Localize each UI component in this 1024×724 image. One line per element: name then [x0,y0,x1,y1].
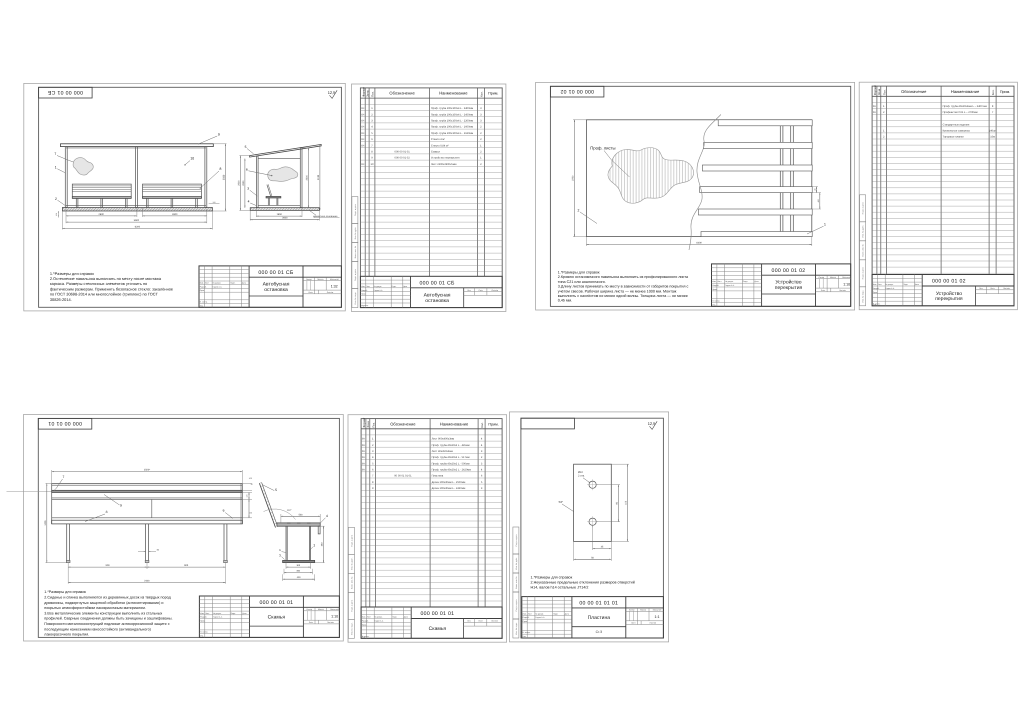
svg-text:Литер: Литер [629,609,635,612]
svg-text:Листов: Листов [1003,287,1010,290]
svg-text:Листов: Листов [327,291,334,294]
svg-text:8: 8 [106,510,108,514]
svg-text:№ докум.: № докум. [725,280,734,283]
svg-text:Масса: Масса [317,278,324,281]
svg-text:Инв. № подл.: Инв. № подл. [862,290,865,303]
svg-text:2500*: 2500* [144,469,150,472]
svg-text:3.Длину листов принимать по ме: 3.Длину листов принимать по месту в зави… [558,285,689,289]
svg-text:000 00 01 02: 000 00 01 02 [932,279,966,285]
svg-text:Устройство перекрытия: Устройство перекрытия [431,157,460,160]
svg-text:Изм.: Изм. [362,616,366,619]
svg-text:Дата: Дата [915,283,919,286]
svg-text:остановка: остановка [264,287,288,293]
svg-text:Литер: Литер [306,608,312,611]
svg-text:№ докум.: № докум. [535,612,544,615]
svg-text:БЧ: БЧ [362,462,365,465]
svg-text:Проф. труба 100х100х4 L - 2450: Проф. труба 100х100х4 L - 2450мм [431,113,473,116]
svg-text:БЧ: БЧ [361,138,364,141]
svg-text:Разраб.: Разраб. [362,620,369,623]
svg-text:Проф. труба 100х100х4 L - 2400: Проф. труба 100х100х4 L - 2400мм [431,107,473,110]
svg-text:Кол.: Кол. [479,91,483,97]
svg-text:1600: 1600 [277,213,283,216]
svg-text:6: 6 [223,509,225,513]
svg-text:БЧ: БЧ [362,438,365,441]
svg-text:6: 6 [246,167,248,171]
svg-text:Лит.: Лит. [979,287,983,290]
svg-text:120: 120 [246,495,249,498]
svg-text:Прим.: Прим. [488,92,498,96]
svg-text:Лист 900х400х3мм: Лист 900х400х3мм [432,438,455,441]
svg-text:Лист: Лист [366,285,370,288]
svg-text:Торцевые планки: Торцевые планки [943,136,964,139]
svg-text:Проф. труба 40х20х2мм L – 6400: Проф. труба 40х20х2мм L – 6400 мм [943,105,987,108]
svg-text:Литер: Литер [819,276,825,279]
svg-text:1: 1 [55,165,57,169]
svg-text:Подп.: Подп. [392,616,397,619]
svg-text:Дата: Дата [403,285,407,288]
svg-text:Разраб.: Разраб. [523,616,530,619]
svg-text:Поверхности металлоконструкций: Поверхности металлоконструкций подлежат … [44,622,169,626]
svg-text:Изм.: Изм. [200,282,205,285]
svg-text:40: 40 [814,189,817,191]
svg-text:Зона: Зона [365,90,369,97]
svg-text:Утв.: Утв. [523,635,527,638]
svg-text:Лист: Лист [990,287,994,290]
svg-text:Н14, валов h14 остальные ЈТ14/: Н14, валов h14 остальные ЈТ14/2 [531,586,589,590]
svg-text:Поз.: Поз. [371,91,375,97]
svg-text:древесины, подвергнутых защитн: древесины, подвергнутых защитной обработ… [44,601,163,605]
svg-text:10: 10 [190,157,194,161]
svg-text:Подп. и дата: Подп. и дата [354,203,357,216]
svg-text:5600: 5600 [134,219,140,222]
svg-text:Гаджи А.А.: Гаджи А.А. [213,286,223,289]
svg-text:Лист: Лист [205,282,209,285]
svg-text:5: 5 [275,488,277,492]
svg-text:Подп.: Подп. [392,285,397,288]
svg-text:2800: 2800 [172,213,178,216]
svg-text:Лит.: Лит. [467,620,471,623]
svg-text:Гаджи А.А.: Гаджи А.А. [886,287,896,290]
svg-text:лакокрасочного покрытия.: лакокрасочного покрытия. [44,633,89,637]
svg-text:учётом свесов. Рабочая ширина: учётом свесов. Рабочая ширина листа — не… [558,289,677,293]
svg-text:Пластина: Пластина [588,615,611,621]
svg-text:Лист 2200х2900х5мм: Лист 2200х2900х5мм [431,163,457,166]
svg-text:Подп. и дата: Подп. и дата [515,599,518,612]
svg-text:Подп. и дата: Подп. и дата [515,534,518,547]
svg-text:Утв.: Утв. [873,303,877,306]
svg-text:Инв. № дубл.: Инв. № дубл. [515,557,518,570]
svg-text:12,5: 12,5 [648,421,656,426]
svg-text:Подп. и дата: Подп. и дата [862,267,865,280]
svg-text:Скамья: Скамья [429,626,447,632]
svg-text:Ст.3: Ст.3 [596,630,603,634]
svg-text:Подп.: Подп. [903,283,908,286]
svg-text:Лит.: Лит. [467,289,471,292]
svg-text:Стекло 0,84 м²: Стекло 0,84 м² [431,144,449,147]
svg-text:Подп. и дата: Подп. и дата [350,599,353,612]
svg-text:000 00 01 01: 000 00 01 01 [48,420,82,426]
svg-text:600: 600 [817,199,820,202]
svg-text:1.*Размеры для справок: 1.*Размеры для справок [558,271,600,275]
svg-text:типа С21 или аналогичного.: типа С21 или аналогичного. [558,280,606,284]
svg-text:БЧ: БЧ [362,444,365,447]
svg-text:Инв. № дубл.: Инв. № дубл. [350,557,353,570]
svg-text:Пров.: Пров. [361,293,366,296]
svg-text:150: 150 [55,213,58,216]
svg-text:Разраб.: Разраб. [200,286,207,289]
svg-text:000 00 01 02: 000 00 01 02 [772,268,806,274]
svg-text:№ докум.: № докум. [375,616,383,619]
svg-text:000 00 01 01: 000 00 01 01 [420,611,454,617]
svg-text:Доска 100х30мм L - 2420мм: Доска 100х30мм L - 2420мм [432,487,466,490]
svg-text:Кровельные саморезы: Кровельные саморезы [943,130,970,133]
svg-text:Проф. листы: Проф. листы [590,145,615,150]
svg-text:000 00 01 01: 000 00 01 01 [395,151,411,154]
svg-text:1: 1 [824,222,826,226]
svg-text:Разраб.: Разраб. [873,287,880,290]
svg-text:Изм.: Изм. [523,612,528,615]
svg-text:Пров.: Пров. [873,291,878,294]
svg-text:Подп.: Подп. [231,612,236,615]
svg-text:№ докум.: № докум. [886,283,894,286]
svg-text:9: 9 [120,504,122,508]
svg-text:Лист: Лист [631,622,635,625]
svg-text:№ докум.: № докум. [374,285,382,288]
svg-text:Обозначение: Обозначение [390,421,416,426]
svg-text:000 00 01 02: 000 00 01 02 [560,88,594,94]
svg-text:Наименование: Наименование [439,91,468,96]
svg-text:000 00 01 02: 000 00 01 02 [395,157,411,160]
svg-text:Листов: Листов [650,622,657,625]
svg-text:Кол.: Кол. [480,422,484,428]
svg-text:Лист: Лист [479,289,483,292]
svg-text:0,45 мм.: 0,45 мм. [558,299,572,303]
svg-text:Лист: Лист [717,280,721,283]
svg-text:7: 7 [54,152,56,156]
svg-text:2300: 2300 [242,180,245,186]
svg-text:Подп. и дата: Подп. и дата [862,202,865,215]
svg-text:Гаджи А.А.: Гаджи А.А. [374,289,384,292]
svg-text:2.Сиденье и спинка выполняются: 2.Сиденье и спинка выполняются из деревя… [44,596,171,600]
svg-text:Листов: Листов [327,621,334,624]
svg-text:00 00 01 01 01: 00 00 01 01 01 [579,601,618,607]
svg-text:БЧ: БЧ [361,107,364,110]
svg-text:10: 10 [250,483,252,486]
svg-text:Н. контр.: Н. контр. [200,631,208,634]
svg-text:Наименование: Наименование [440,421,469,426]
svg-text:Лист: Лист [205,612,209,615]
svg-text:БЧ: БЧ [873,105,876,108]
svg-text:Лист: Лист [309,621,313,624]
svg-text:Профнастил С21 L – 2700мм: Профнастил С21 L – 2700мм [943,111,978,114]
svg-text:Наименование: Наименование [951,89,980,94]
svg-text:БЧ: БЧ [873,111,876,114]
svg-text:№ докум.: № докум. [213,282,222,285]
svg-text:Поз.: Поз. [882,89,886,95]
svg-text:4: 4 [326,514,328,518]
svg-text:Гаджи А.А.: Гаджи А.А. [535,616,545,619]
svg-text:Стандартные изделия: Стандартные изделия [943,123,970,126]
svg-text:БЧ: БЧ [361,113,364,116]
svg-text:Утв.: Утв. [362,635,366,638]
svg-text:Утв.: Утв. [361,305,365,308]
svg-text:Инв. № дубл.: Инв. № дубл. [862,225,865,238]
svg-text:БЧ: БЧ [361,120,364,123]
svg-text:Листов: Листов [839,289,846,292]
svg-text:Гаджи А.А.: Гаджи А.А. [213,616,223,619]
svg-text:Лист: Лист [478,620,482,623]
svg-text:00 00 01 01 01: 00 00 01 01 01 [394,475,412,478]
svg-text:3: 3 [247,187,249,191]
svg-text:7: 7 [62,475,64,479]
svg-text:БЧ: БЧ [361,132,364,135]
svg-text:Подп. и дата: Подп. и дата [354,268,357,281]
svg-text:1:10: 1:10 [331,614,338,618]
svg-text:000 00 01 СБ: 000 00 01 СБ [258,270,294,276]
svg-text:10м: 10м [990,136,995,139]
svg-text:Проф. труба 40х20х2 L - 445мм: Проф. труба 40х20х2 L - 445мм [432,444,470,447]
svg-text:профилей. Сварные соединения д: профилей. Сварные соединения должны быть… [44,617,172,621]
svg-text:2.Неуказанные предельные откло: 2.Неуказанные предельные отклонения разм… [531,581,635,585]
svg-text:Гаджи А.А.: Гаджи А.А. [725,284,735,287]
svg-text:1.*Размеры для справок: 1.*Размеры для справок [531,576,573,580]
svg-text:Проф. труба 100х100х4 L - 2200: Проф. труба 100х100х4 L - 2200мм [431,120,473,123]
svg-text:Лист: Лист [878,283,882,286]
svg-text:Литер: Литер [306,278,312,281]
svg-text:100: 100 [249,477,252,480]
svg-text:1005: 1005 [44,520,47,526]
svg-text:БЧ: БЧ [361,126,364,129]
svg-text:Доска 100х30мм L - 2500мм: Доска 100х30мм L - 2500мм [432,481,466,484]
svg-text:Лист: Лист [821,289,825,292]
svg-text:Утв.: Утв. [200,304,204,307]
svg-text:Утв.: Утв. [200,634,204,637]
svg-text:Листов: Листов [491,289,498,292]
svg-text:4: 4 [248,200,250,204]
svg-text:Масса: Масса [830,276,837,279]
svg-text:30826-2014.: 30826-2014. [50,297,72,302]
svg-text:Проф. труба 40х20х2 L - 517мм: Проф. труба 40х20х2 L - 517мм [432,456,470,459]
svg-text:Инв. № подл.: Инв. № подл. [515,622,518,635]
svg-text:Подп.: Подп. [230,282,235,285]
svg-text:2500: 2500 [222,174,225,180]
svg-text:000 00 01 01: 000 00 01 01 [259,600,293,606]
svg-text:Ø10: Ø10 [578,471,583,474]
svg-text:Изм.: Изм. [873,283,877,286]
svg-text:Пластина: Пластина [432,475,444,478]
svg-text:Изм.: Изм. [712,280,717,283]
svg-text:Взам. инв. №: Взам. инв. № [862,243,865,256]
svg-text:000 00 01 СБ: 000 00 01 СБ [47,89,83,95]
svg-text:Проф. труба 40х20х2 L - 500мм: Проф. труба 40х20х2 L - 500мм [432,462,470,465]
svg-text:Взам. инв. №: Взам. инв. № [350,576,353,589]
svg-text:Листов: Листов [491,620,498,623]
svg-text:Н. контр.: Н. контр. [200,301,208,304]
svg-text:2742: 2742 [317,174,320,180]
svg-text:6200: 6200 [135,225,141,228]
svg-text:12,5: 12,5 [328,90,336,95]
svg-text:Масштаб: Масштаб [653,609,662,612]
svg-text:выполнять с нахлёстом не менее: выполнять с нахлёстом не менее одной вол… [558,294,688,298]
svg-text:2 отв.: 2 отв. [578,475,585,478]
svg-text:Прим.: Прим. [488,422,498,426]
svg-text:Масса: Масса [318,608,325,611]
svg-text:Пров.: Пров. [362,623,367,626]
svg-text:Подп.: Подп. [743,280,748,283]
svg-text:Скамья: Скамья [268,614,286,620]
svg-text:Лист: Лист [367,616,371,619]
svg-text:перекрытия: перекрытия [935,296,963,302]
svg-text:2300: 2300 [306,175,309,181]
svg-text:Масштаб: Масштаб [842,276,851,279]
svg-text:5: 5 [245,145,247,149]
svg-text:Прим.: Прим. [1000,90,1010,94]
svg-text:Подп.: Подп. [553,612,558,615]
svg-text:9: 9 [218,132,220,136]
svg-text:1:32: 1:32 [331,284,338,288]
svg-text:6400: 6400 [696,242,702,245]
svg-text:2000: 2000 [282,217,288,220]
svg-text:БЧ: БЧ [362,450,365,453]
svg-text:Лист 40х450х3мм: Лист 40х450х3мм [432,450,453,453]
svg-text:Пров.: Пров. [523,620,528,623]
svg-text:Зона: Зона [366,421,370,428]
svg-text:8: 8 [219,167,221,171]
svg-text:Скамья: Скамья [431,151,441,154]
svg-text:2100: 2100 [144,580,150,583]
svg-text:Подп. и дата: Подп. и дата [350,534,353,547]
svg-text:Взам. инв. №: Взам. инв. № [515,575,518,588]
svg-text:Изм.: Изм. [200,612,205,615]
svg-text:100: 100 [213,201,216,204]
svg-text:Разраб.: Разраб. [200,616,207,619]
svg-text:покрытых атмосферостойким лако: покрытых атмосферостойким лакокрасочным … [44,606,146,610]
svg-text:Разраб.: Разраб. [361,289,368,292]
svg-text:Лист: Лист [528,612,532,615]
svg-text:Проф. труба 100х100х4 L - 1620: Проф. труба 100х100х4 L - 1620мм [431,132,473,135]
svg-text:БЧ: БЧ [361,163,364,166]
svg-text:БЧ: БЧ [361,144,364,147]
svg-text:Н. контр.: Н. контр. [712,299,720,302]
svg-text:1:1: 1:1 [655,615,660,619]
svg-text:Масса: Масса [640,609,647,612]
svg-text:Масштаб: Масштаб [330,278,339,281]
svg-text:1.*Размеры для справок: 1.*Размеры для справок [44,590,86,594]
svg-text:Пров.: Пров. [712,288,717,291]
svg-text:последующим нанесением износос: последующим нанесением износостойкого (а… [44,627,151,631]
svg-text:Утв.: Утв. [712,303,716,306]
svg-text:2: 2 [578,208,580,212]
svg-text:1:10: 1:10 [843,282,850,286]
svg-text:Разраб.: Разраб. [712,284,719,287]
svg-text:Стекло 4 м²: Стекло 4 м² [431,138,445,141]
svg-text:Лист: Лист [308,291,312,294]
svg-text:Масштаб: Масштаб [330,608,339,611]
svg-text:Проф. труба 100х100х4 L - 1600: Проф. труба 100х100х4 L - 1600мм [431,126,473,129]
svg-text:Пров.: Пров. [200,619,205,622]
svg-text:Н. контр.: Н. контр. [523,631,531,634]
svg-text:Зона: Зона [877,88,881,95]
svg-text:2.Кровлю остановочного павильо: 2.Кровлю остановочного павильона выполни… [558,275,689,279]
svg-text:Кол.: Кол. [991,89,995,95]
svg-text:Гаджи А.А.: Гаджи А.А. [375,620,385,623]
svg-text:Инв. № подл.: Инв. № подл. [354,291,357,304]
svg-text:Взам. инв. №: Взам. инв. № [354,245,357,258]
svg-text:Инв. № дубл.: Инв. № дубл. [354,226,357,239]
svg-text:000 00 01 СБ: 000 00 01 СБ [419,281,455,287]
svg-text:остановка: остановка [425,298,449,304]
svg-text:БЧ: БЧ [362,456,365,459]
svg-text:Инв. № подл.: Инв. № подл. [350,622,353,635]
svg-text:БЧ: БЧ [362,468,365,471]
svg-text:2: 2 [55,197,57,201]
svg-text:Пров.: Пров. [200,289,205,292]
svg-text:Дата: Дата [404,616,408,619]
svg-text:№ докум.: № докум. [213,612,222,615]
svg-text:2800: 2800 [99,213,105,216]
svg-text:Изм.: Изм. [361,285,365,288]
svg-text:Обозначение: Обозначение [901,89,927,94]
svg-text:Поз.: Поз. [371,422,375,428]
svg-text:2750: 2750 [572,175,575,181]
svg-text:2500: 2500 [237,180,240,186]
svg-text:Обозначение: Обозначение [389,91,415,96]
svg-text:Проф. труба 40х20х2 L - 2420мм: Проф. труба 40х20х2 L - 2420мм [432,468,472,471]
svg-text:146шт: 146шт [989,130,997,133]
svg-text:перекрытия: перекрытия [775,285,803,291]
svg-text:110°: 110° [287,509,292,512]
svg-text:3.Все металлические элементы к: 3.Все металлические элементы конструкции… [44,611,162,615]
